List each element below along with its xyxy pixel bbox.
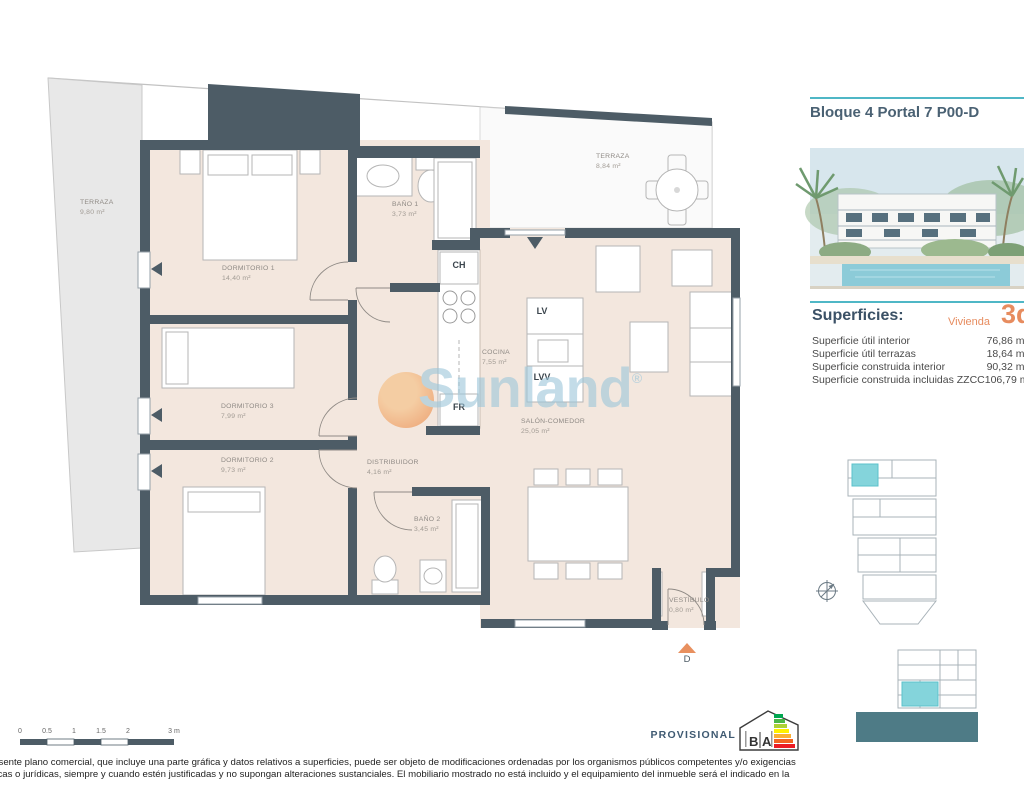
surface-row-label: Superficie construida incluidas ZZCC [812, 374, 985, 386]
surface-row: Superficie útil terrazas 18,64 m² [812, 348, 1024, 360]
surface-row: Superficie útil interior 76,86 m² [812, 335, 1024, 347]
room-label-distribuidor: DISTRIBUIDOR4,16 m² [367, 458, 419, 478]
surface-row-label: Superficie útil interior [812, 335, 910, 347]
scale-tick-15: 1.5 [96, 728, 106, 735]
panel-rule-top [810, 97, 1024, 99]
vivienda-label: Vivienda [948, 316, 990, 328]
appliance-label-fr: FR [448, 402, 470, 412]
surface-row-value: 76,86 m² [987, 335, 1024, 347]
entry-letter-d: D [676, 654, 698, 665]
appliance-label-ch: CH [448, 260, 470, 270]
scale-bar: 0 0.5 1 1.5 2 3 m [18, 728, 180, 745]
scale-tick-3m: 3 m [168, 728, 180, 735]
room-label-bano1: BAÑO 13,73 m² [392, 200, 418, 220]
surface-row-value: 106,79 m² [985, 374, 1024, 386]
site-plan-keymap [848, 460, 936, 624]
room-label-vestibulo: VESTÍBULO0,80 m² [669, 596, 709, 616]
energy-cert-icon: B A [740, 711, 798, 750]
appliance-label-lv: LV [528, 306, 556, 316]
room-label-dormitorio1: DORMITORIO 114,40 m² [222, 264, 275, 284]
surface-row-value: 18,64 m² [987, 348, 1024, 360]
disclaimer-line-2: nicas o jurídicas, siempre y cuando esté… [0, 769, 789, 780]
compass-icon [816, 580, 838, 602]
building-elevation-key [856, 650, 978, 742]
energy-letter-b: B [749, 734, 758, 749]
vivienda-type: 3d [1001, 299, 1024, 330]
surface-row-label: Superficie útil terrazas [812, 348, 916, 360]
room-label-dormitorio2: DORMITORIO 29,73 m² [221, 456, 274, 476]
room-label-cocina: COCINA7,55 m² [482, 348, 510, 368]
scale-tick-2: 2 [126, 728, 130, 735]
superficies-heading: Superficies: [812, 307, 904, 325]
scale-tick-1: 1 [72, 728, 76, 735]
building-render-image [796, 148, 1024, 289]
surface-row-label: Superficie construida interior [812, 361, 945, 373]
unit-title: Bloque 4 Portal 7 P00-D [810, 104, 979, 121]
provisional-stamp: PROVISIONAL [646, 729, 736, 741]
surface-row: Superficie construida interior 90,32 m² [812, 361, 1024, 373]
room-label-dormitorio3: DORMITORIO 37,99 m² [221, 402, 274, 422]
floor-plan-sheet: { "panel": { "title": "Bloque 4 Portal 7… [0, 0, 1024, 800]
disclaimer-line-1: resente plano comercial, que incluye una… [0, 757, 796, 768]
entry-arrow [678, 643, 696, 653]
room-label-terraza-sup: TERRAZA8,84 m² [596, 152, 629, 172]
energy-letter-a: A [762, 734, 772, 749]
room-label-bano2: BAÑO 23,45 m² [414, 515, 440, 535]
scale-tick-0: 0 [18, 728, 22, 735]
room-label-salon: SALÓN-COMEDOR25,05 m² [521, 417, 585, 437]
panel-rule-middle [810, 301, 1024, 303]
room-label-terraza-izq: TERRAZA9,80 m² [80, 198, 113, 218]
scale-tick-05: 0.5 [42, 728, 52, 735]
surface-row: Superficie construida incluidas ZZCC 106… [812, 374, 1024, 386]
surface-row-value: 90,32 m² [987, 361, 1024, 373]
appliance-label-lvv: LVV [526, 372, 558, 382]
